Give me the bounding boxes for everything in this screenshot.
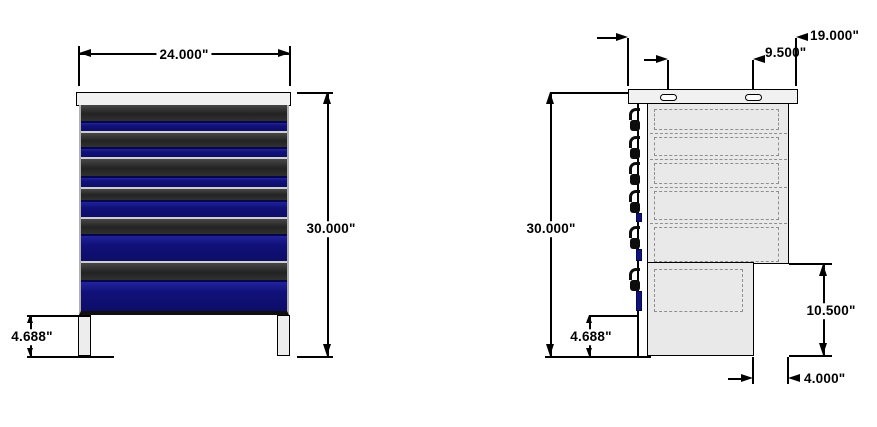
technical-drawing-canvas: 24.000" 30.000" 4.688" 30.000" bbox=[0, 0, 877, 427]
drawer-recess bbox=[81, 105, 287, 121]
drawer-recess bbox=[81, 133, 287, 147]
drawer-handle-icon bbox=[629, 226, 640, 238]
drawer-front-3 bbox=[81, 159, 287, 189]
arrow-up-icon bbox=[323, 92, 331, 104]
hidden-separator-line bbox=[650, 187, 787, 188]
arrow-up-icon bbox=[27, 315, 33, 323]
extension-line bbox=[589, 315, 637, 317]
arrow-down-icon bbox=[586, 348, 592, 356]
drawer-face bbox=[81, 147, 287, 157]
extension-line bbox=[789, 355, 832, 357]
floor-line bbox=[545, 356, 651, 358]
arrow-up-icon bbox=[819, 264, 827, 276]
arrow-down-icon bbox=[819, 343, 827, 355]
dim-label-front-leg: 4.688" bbox=[8, 329, 55, 345]
arrow-left-icon bbox=[796, 33, 808, 41]
drawer-handle-grip-icon bbox=[630, 202, 640, 213]
drawer-handle-grip-icon bbox=[630, 238, 640, 249]
drawer-handle-grip-icon bbox=[630, 120, 640, 131]
drawer-handle-icon bbox=[629, 190, 640, 202]
drawer-handle-icon bbox=[629, 108, 640, 120]
drawer-recess bbox=[81, 219, 287, 234]
extension-line bbox=[27, 315, 91, 317]
hidden-drawer-outline-4 bbox=[654, 191, 779, 220]
dimension-tail bbox=[597, 37, 616, 39]
hidden-drawer-outline-5 bbox=[654, 227, 779, 262]
drawer-front-1 bbox=[81, 105, 287, 133]
drawer-front-6 bbox=[81, 263, 287, 311]
hidden-drawer-outline-2 bbox=[654, 137, 779, 156]
dim-label-top-width: 19.000" bbox=[810, 28, 859, 44]
hidden-separator-line bbox=[650, 159, 787, 160]
drawer-recess bbox=[81, 263, 287, 280]
drawer-face-edge bbox=[636, 291, 642, 311]
drawer-face bbox=[81, 234, 287, 261]
hidden-separator-line bbox=[650, 133, 787, 134]
drawer-face bbox=[81, 280, 287, 311]
arrow-left-icon bbox=[753, 55, 765, 63]
extension-line bbox=[627, 38, 629, 86]
hidden-drawer-outline-1 bbox=[654, 109, 779, 130]
dim-label-side-leg: 4.688" bbox=[567, 329, 614, 345]
drawer-face bbox=[81, 121, 287, 131]
arrow-right-icon bbox=[278, 49, 290, 57]
drawer-recess bbox=[81, 189, 287, 200]
arrow-down-icon bbox=[323, 344, 331, 356]
arrow-left-icon bbox=[788, 374, 800, 382]
front-leg-left bbox=[78, 315, 91, 356]
arrow-right-icon bbox=[741, 374, 753, 382]
hidden-separator-line bbox=[650, 223, 787, 224]
arrow-up-icon bbox=[546, 92, 554, 104]
side-tabletop bbox=[628, 89, 798, 104]
drawer-face-edge bbox=[636, 213, 642, 222]
dim-label-side-height: 30.000" bbox=[523, 221, 578, 237]
front-tabletop bbox=[76, 92, 291, 106]
front-drawer-stack bbox=[79, 105, 289, 315]
drawer-face bbox=[81, 200, 287, 217]
drawer-handle-grip-icon bbox=[630, 174, 640, 185]
drawer-recess bbox=[81, 159, 287, 176]
arrow-down-icon bbox=[546, 344, 554, 356]
dimension-tail bbox=[728, 378, 741, 380]
drawer-handle-icon bbox=[629, 162, 640, 174]
dim-label-notch-height: 10.500" bbox=[803, 303, 858, 319]
extension-line bbox=[667, 60, 669, 90]
dim-label-slot-spacing: 9.500" bbox=[765, 45, 806, 61]
drawer-handle-grip-icon bbox=[630, 280, 640, 291]
drawer-front-2 bbox=[81, 133, 287, 159]
hidden-drawer-outline-3 bbox=[654, 163, 779, 184]
extension-line bbox=[297, 356, 333, 358]
mounting-slot-right bbox=[745, 94, 762, 101]
extension-line bbox=[752, 60, 754, 90]
dim-label-notch-depth: 4.000" bbox=[804, 371, 845, 387]
dim-label-front-width: 24.000" bbox=[156, 47, 211, 63]
hidden-drawer-outline-6 bbox=[654, 269, 743, 312]
drawer-face-edge bbox=[636, 249, 642, 261]
arrow-down-icon bbox=[27, 348, 33, 356]
floor-line bbox=[27, 356, 114, 358]
drawer-front-4 bbox=[81, 189, 287, 219]
drawer-front-5 bbox=[81, 219, 287, 263]
dim-label-front-height: 30.000" bbox=[303, 221, 358, 237]
front-leg-right bbox=[277, 315, 290, 356]
drawer-face bbox=[81, 176, 287, 187]
drawer-handle-grip-icon bbox=[630, 148, 640, 159]
mounting-slot-left bbox=[660, 94, 677, 101]
drawer-handle-icon bbox=[629, 136, 640, 148]
arrow-left-icon bbox=[79, 49, 91, 57]
drawer-handle-icon bbox=[629, 268, 640, 280]
arrow-up-icon bbox=[586, 315, 592, 323]
extension-line bbox=[550, 92, 628, 94]
